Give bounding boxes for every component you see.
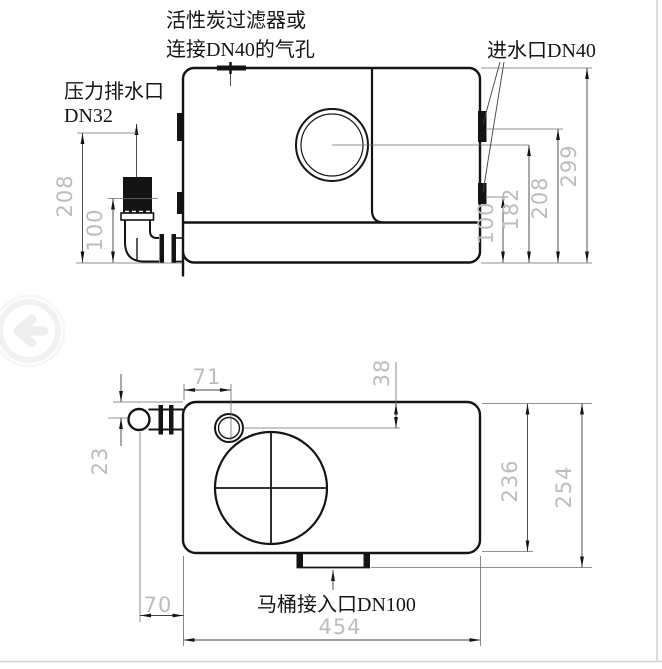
pressure-outlet-assembly (121, 124, 183, 263)
technical-drawing-page: 208 100 100 182 208 299 活性炭过滤器或 连接DN40的气… (0, 0, 662, 669)
discharge-pipe-end (129, 409, 150, 430)
dim-text-100-right: 100 (474, 201, 498, 244)
back-arrow-icon[interactable] (0, 296, 64, 366)
inlet-leader-1 (483, 62, 500, 124)
discharge-flange-bar-1 (159, 405, 164, 435)
dim-text-182: 182 (499, 187, 523, 230)
pressure-outlet-label-line1: 压力排水口 (64, 80, 164, 103)
outlet-socket (121, 213, 154, 220)
right-inlet-boss-lower (478, 183, 487, 204)
pressure-outlet-label-line2: DN32 (64, 105, 113, 127)
dim-text-70: 70 (144, 593, 173, 617)
dim-text-236: 236 (498, 459, 522, 502)
outlet-pipe (123, 177, 152, 213)
macerator-pump-dimension-drawing: 208 100 100 182 208 299 活性炭过滤器或 连接DN40的气… (0, 0, 662, 669)
dim-text-23: 23 (88, 447, 112, 476)
back-icon-arrow (18, 319, 44, 343)
elbow-inner (150, 220, 159, 238)
toilet-connector-left-wall (297, 553, 304, 568)
vent-hole-inner (219, 418, 240, 439)
dim-text-71: 71 (193, 365, 222, 389)
top-view: 71 38 23 236 254 70 454 马桶接入口DN100 (88, 359, 592, 646)
vent-label-line2: 连接DN40的气孔 (166, 38, 315, 61)
side-view: 208 100 100 182 208 299 活性炭过滤器或 连接DN40的气… (53, 9, 596, 277)
dim-text-299: 299 (557, 144, 581, 187)
toilet-connector-right-wall (364, 553, 371, 568)
elbow-outer (125, 220, 159, 262)
vent-label-line1: 活性炭过滤器或 (166, 9, 306, 32)
flange-bar-1 (160, 234, 165, 263)
discharge-flange-bar-2 (169, 405, 174, 435)
dim-text-100-left: 100 (83, 208, 107, 251)
dim-text-38: 38 (370, 359, 394, 388)
tank-outline (183, 68, 480, 263)
left-inlet-boss-upper (177, 113, 184, 141)
toilet-inlet-label: 马桶接入口DN100 (257, 593, 416, 616)
dim-text-208-right: 208 (528, 176, 552, 219)
flange-bar-2 (172, 234, 177, 263)
dim-text-208-left: 208 (53, 174, 77, 217)
left-inlet-boss-lower (177, 192, 184, 214)
dim-text-454: 454 (318, 615, 361, 639)
dim-text-254: 254 (552, 465, 576, 508)
inlet-label: 进水口DN40 (487, 39, 596, 62)
tank-top-outline (183, 402, 480, 553)
